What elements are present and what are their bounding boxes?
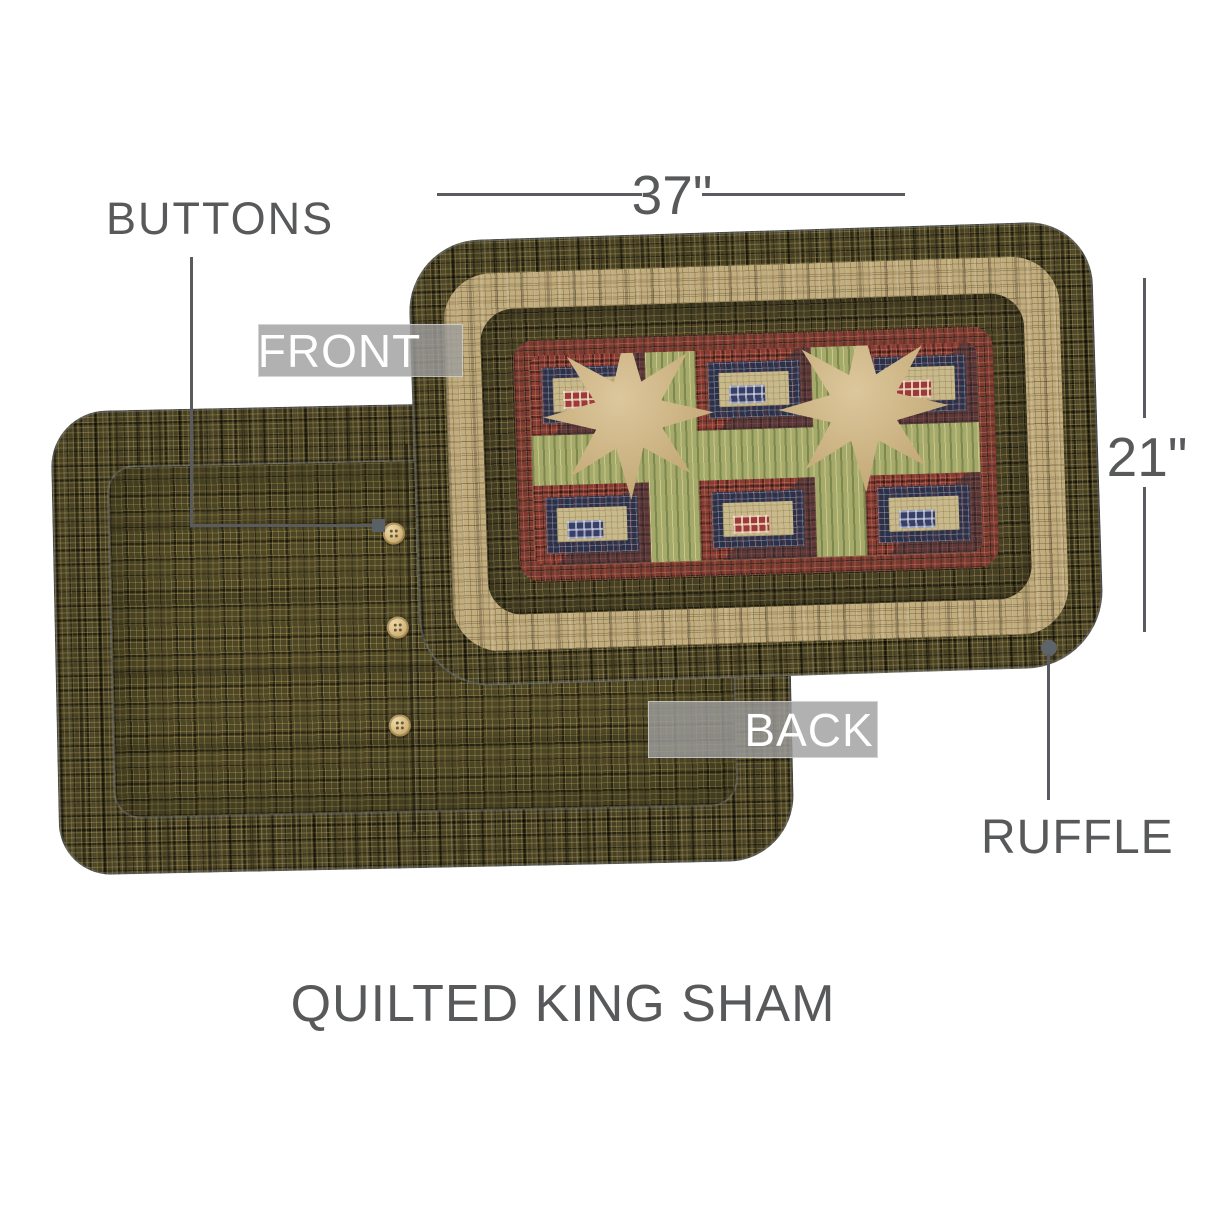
log-cabin-block [695, 347, 813, 431]
front-label: FRONT [258, 324, 463, 377]
ruffle-label: RUFFLE [981, 814, 1174, 862]
width-dimension-line-right [702, 193, 905, 196]
width-dimension-value: 37" [632, 168, 713, 223]
front-pillow-photo [407, 220, 1105, 687]
width-dimension-line-left [437, 193, 642, 196]
log-cabin-block [699, 477, 817, 561]
front-pillow-tan-ruffle-band [442, 255, 1070, 652]
height-dimension-line-bottom [1143, 487, 1146, 632]
buttons-callout-end-marker [372, 519, 385, 532]
product-diagram: BUTTONS 37" 21" FRONT BACK RUFFLE QUILTE… [0, 0, 1214, 1214]
front-pillow-red-frame [512, 326, 999, 583]
front-pillow-quilt-field [529, 342, 983, 566]
front-pillow-outer-ruffle [407, 220, 1105, 687]
buttons-callout-line-vertical [190, 257, 193, 525]
front-pillow-olive-border [479, 293, 1032, 616]
height-dimension-line-top [1143, 278, 1146, 418]
buttons-label: BUTTONS [106, 196, 334, 241]
log-cabin-block [865, 472, 983, 556]
product-title: QUILTED KING SHAM [291, 978, 836, 1030]
buttons-callout-line-horizontal [190, 524, 377, 527]
height-dimension-value: 21" [1107, 430, 1188, 485]
ruffle-callout-line [1047, 654, 1050, 800]
back-label: BACK [648, 701, 878, 758]
log-cabin-block [533, 482, 651, 566]
